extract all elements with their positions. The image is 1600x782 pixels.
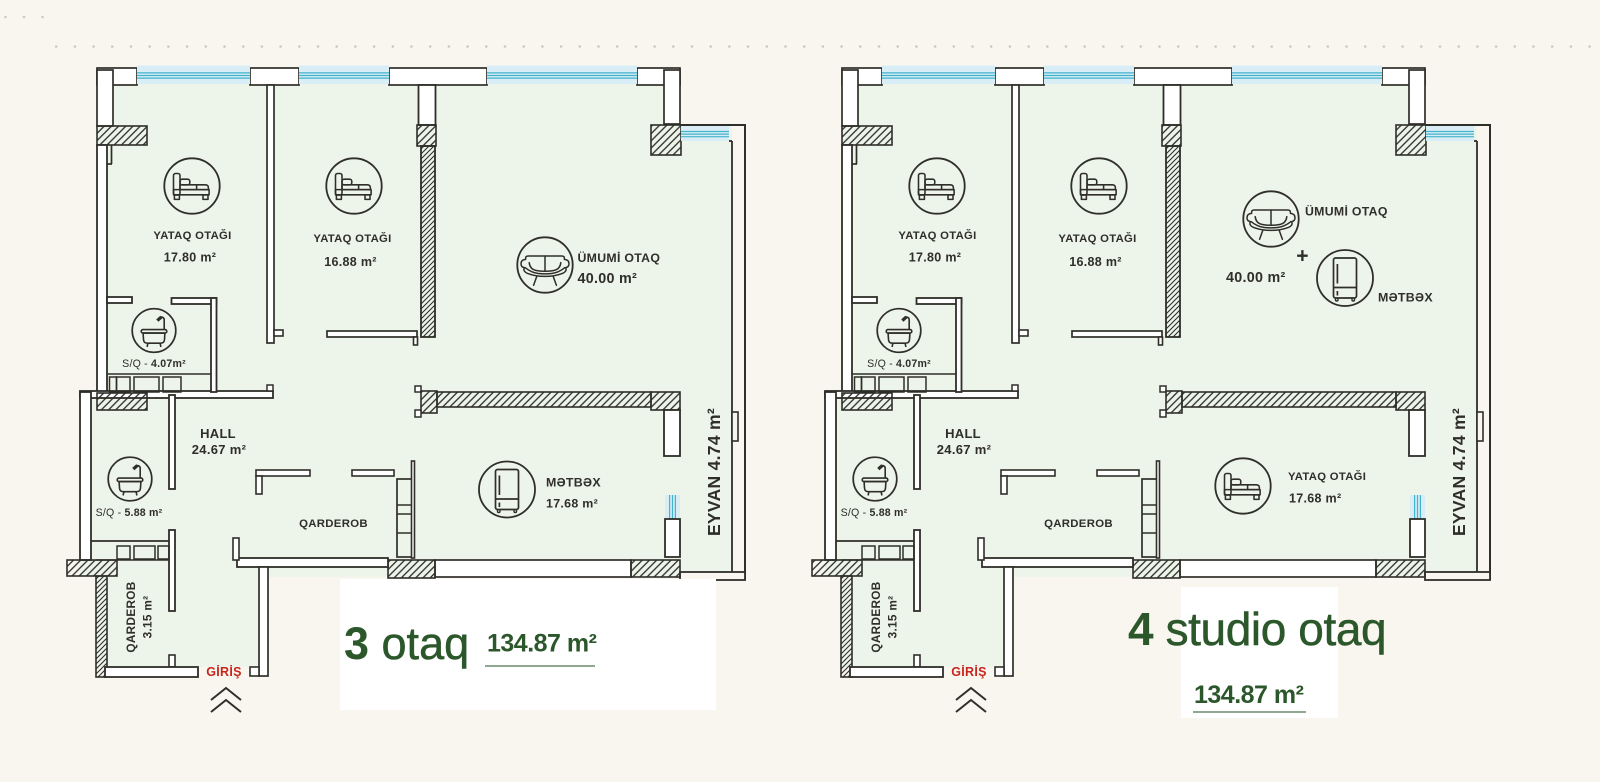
svg-text:YATAQ OTAĞI: YATAQ OTAĞI bbox=[313, 232, 391, 245]
svg-text:QARDEROB: QARDEROB bbox=[124, 581, 138, 652]
svg-text:YATAQ OTAĞI: YATAQ OTAĞI bbox=[153, 229, 231, 242]
svg-text:17.68 m²: 17.68 m² bbox=[546, 497, 598, 511]
svg-text:YATAQ OTAĞI: YATAQ OTAĞI bbox=[1288, 470, 1366, 483]
svg-text:16.88 m²: 16.88 m² bbox=[324, 255, 376, 269]
svg-text:S/Q - 4.07m²: S/Q - 4.07m² bbox=[867, 358, 931, 370]
svg-text:24.67 m²: 24.67 m² bbox=[192, 442, 247, 457]
svg-text:17.80 m²: 17.80 m² bbox=[164, 251, 216, 265]
svg-text:4 studio otaq: 4 studio otaq bbox=[1128, 603, 1386, 655]
svg-text:HALL: HALL bbox=[945, 426, 981, 441]
svg-text:HALL: HALL bbox=[200, 426, 236, 441]
svg-text:MƏTBƏX: MƏTBƏX bbox=[1378, 291, 1433, 305]
svg-text:S/Q - 5.88 m²: S/Q - 5.88 m² bbox=[96, 507, 163, 519]
svg-text:GİRİŞ: GİRİŞ bbox=[206, 664, 242, 679]
svg-text:+: + bbox=[1296, 245, 1309, 268]
svg-text:QARDEROB: QARDEROB bbox=[1044, 518, 1113, 530]
svg-text:GİRİŞ: GİRİŞ bbox=[951, 664, 987, 679]
svg-text:17.80 m²: 17.80 m² bbox=[909, 251, 961, 265]
svg-text:134.87 m²: 134.87 m² bbox=[1194, 681, 1304, 709]
svg-text:40.00 m²: 40.00 m² bbox=[578, 271, 638, 287]
svg-text:3.15 m²: 3.15 m² bbox=[886, 596, 900, 639]
svg-text:EYVAN 4.74 m²: EYVAN 4.74 m² bbox=[704, 408, 724, 536]
svg-text:134.87 m²: 134.87 m² bbox=[487, 630, 597, 658]
svg-text:YATAQ OTAĞI: YATAQ OTAĞI bbox=[898, 229, 976, 242]
svg-text:MƏTBƏX: MƏTBƏX bbox=[546, 476, 601, 490]
svg-text:17.68 m²: 17.68 m² bbox=[1289, 492, 1341, 506]
svg-text:3.15 m²: 3.15 m² bbox=[141, 596, 155, 639]
svg-text:QARDEROB: QARDEROB bbox=[869, 581, 883, 652]
svg-text:3 otaq: 3 otaq bbox=[344, 618, 469, 669]
svg-text:ÜMUMİ OTAQ: ÜMUMİ OTAQ bbox=[1305, 204, 1388, 219]
svg-text:16.88 m²: 16.88 m² bbox=[1069, 255, 1121, 269]
svg-text:S/Q - 4.07m²: S/Q - 4.07m² bbox=[122, 358, 186, 370]
svg-text:YATAQ OTAĞI: YATAQ OTAĞI bbox=[1058, 232, 1136, 245]
svg-text:EYVAN 4.74 m²: EYVAN 4.74 m² bbox=[1449, 408, 1469, 536]
svg-text:40.00 m²: 40.00 m² bbox=[1226, 270, 1286, 286]
svg-text:ÜMUMİ OTAQ: ÜMUMİ OTAQ bbox=[578, 250, 661, 265]
svg-text:24.67 m²: 24.67 m² bbox=[937, 442, 992, 457]
svg-text:QARDEROB: QARDEROB bbox=[299, 518, 368, 530]
svg-text:S/Q - 5.88 m²: S/Q - 5.88 m² bbox=[841, 507, 908, 519]
